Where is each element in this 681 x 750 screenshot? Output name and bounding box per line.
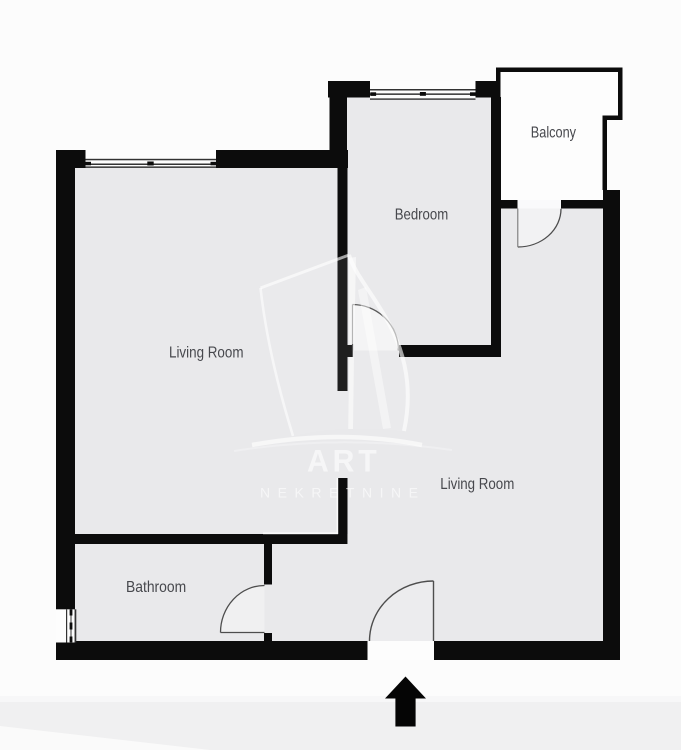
- svg-text:NEKRETNINE: NEKRETNINE: [260, 485, 426, 501]
- svg-text:Bathroom: Bathroom: [126, 579, 186, 596]
- svg-text:Balcony: Balcony: [531, 125, 576, 142]
- svg-text:Bedroom: Bedroom: [395, 207, 449, 224]
- svg-text:Living Room: Living Room: [440, 476, 514, 493]
- svg-text:ART: ART: [307, 443, 381, 479]
- svg-text:Living Room: Living Room: [169, 345, 244, 362]
